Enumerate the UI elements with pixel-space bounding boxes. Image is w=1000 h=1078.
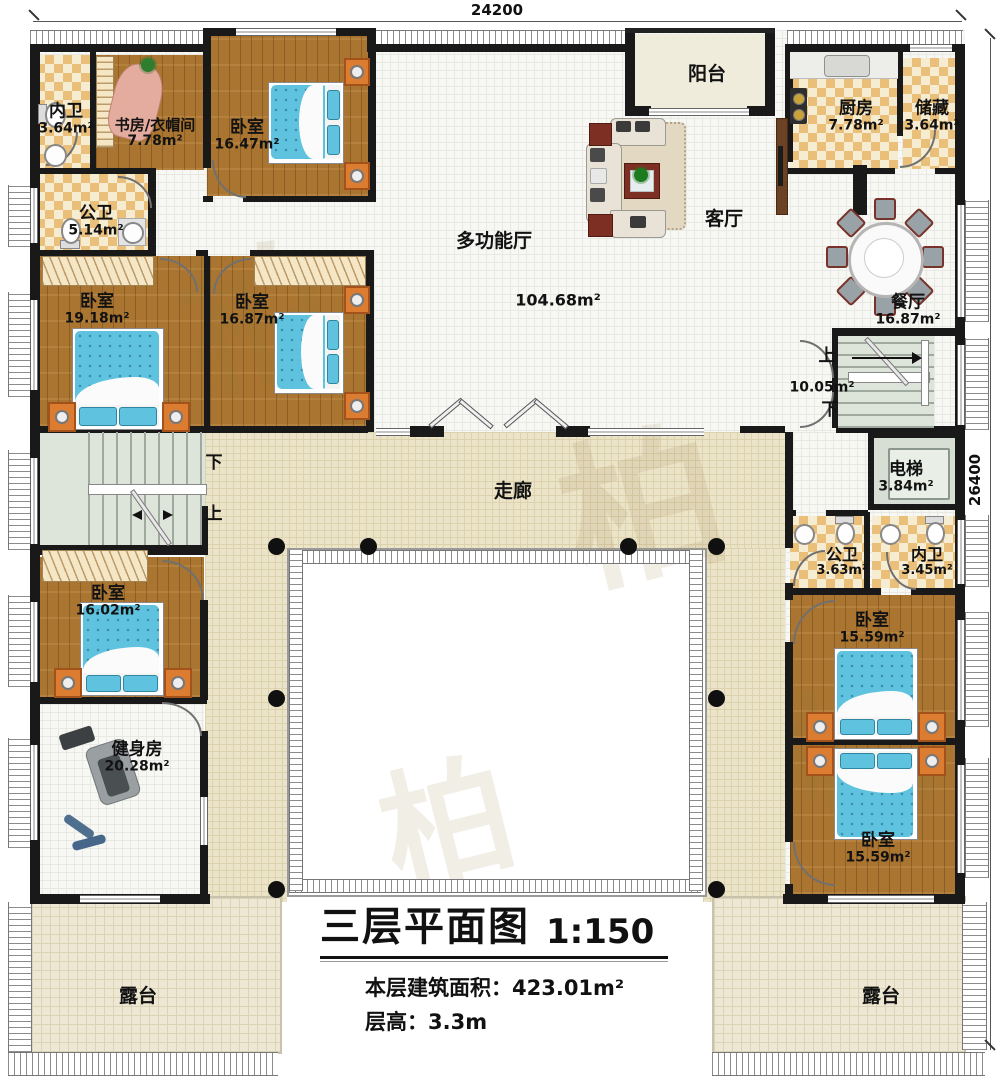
- wall: [785, 588, 881, 595]
- sofa-cushion: [616, 121, 631, 132]
- stair-handrail: [921, 340, 929, 406]
- wall: [200, 600, 208, 700]
- room-area: 3.84m²: [878, 480, 933, 495]
- room-area: 3.64m²: [904, 119, 959, 134]
- closet: [254, 256, 366, 286]
- room-name: 走廊: [494, 482, 532, 502]
- pillow: [327, 125, 340, 155]
- wall: [148, 168, 156, 256]
- column-dot: [708, 690, 725, 707]
- nightstand: [344, 162, 370, 190]
- stove-burner: [793, 93, 805, 105]
- window: [30, 458, 38, 544]
- courtyard-parapet: [289, 879, 701, 893]
- wall: [243, 196, 376, 202]
- floor-corridor-right: [703, 548, 785, 902]
- stairs-right-up-label: 上: [819, 348, 836, 366]
- room-name: 公卫: [68, 206, 123, 224]
- nightstand: [344, 392, 370, 420]
- wall: [204, 426, 368, 433]
- floor-plan: 柏 柏 柏 柏: [0, 0, 1000, 1078]
- sofa-cushion: [590, 188, 605, 202]
- wall: [203, 36, 211, 168]
- dining-chair: [826, 246, 848, 268]
- terrace-parapet: [8, 902, 32, 1052]
- room-label-bedroom-1647: 卧室 16.47m²: [214, 120, 279, 153]
- nightstand: [344, 286, 370, 314]
- wall: [200, 731, 208, 797]
- window-hatch: [965, 515, 989, 587]
- window-hatch: [8, 738, 32, 848]
- room-name: 卧室: [219, 295, 284, 313]
- window: [957, 345, 965, 425]
- pillow: [327, 320, 339, 350]
- stove-burner: [793, 109, 805, 121]
- dining-table-inner: [864, 238, 904, 278]
- terrace-parapet: [8, 1052, 278, 1076]
- dining-chair: [922, 246, 944, 268]
- balcony-rail: [625, 28, 775, 33]
- scale-label: 1:150: [546, 912, 654, 952]
- column-dot: [268, 690, 285, 707]
- room-name: 卧室: [845, 833, 910, 851]
- dimension-line-top: [33, 21, 962, 22]
- direction-label: 下: [206, 455, 223, 473]
- sofa-cushion: [590, 168, 607, 184]
- dimension-right: 26400: [966, 454, 984, 506]
- room-area: 10.05m²: [789, 381, 854, 396]
- stairs-right-down-label: 下: [822, 402, 839, 420]
- room-name: 厨房: [828, 101, 883, 119]
- room-name: 电梯: [878, 462, 933, 480]
- room-name: 公卫: [816, 547, 867, 564]
- plant: [634, 168, 648, 182]
- room-name: 健身房: [104, 742, 169, 760]
- room-area: 5.14m²: [68, 224, 123, 239]
- room-area: 19.18m²: [64, 312, 129, 327]
- window: [30, 300, 38, 390]
- window: [30, 602, 38, 682]
- room-label-gym: 健身房 20.28m²: [104, 742, 169, 775]
- direction-label: 上: [819, 348, 836, 366]
- window: [957, 520, 965, 584]
- stairs-left-down-label: 下: [206, 455, 223, 473]
- column-dot: [708, 881, 725, 898]
- room-name: 卧室: [839, 613, 904, 631]
- nightstand: [806, 712, 834, 742]
- sink: [44, 144, 67, 167]
- wall: [790, 510, 796, 516]
- window: [957, 765, 965, 873]
- room-name: 书房/衣帽间: [115, 118, 195, 134]
- sofa-cushion: [630, 216, 646, 228]
- stair-handrail: [848, 372, 930, 383]
- room-name: 储藏: [904, 101, 959, 119]
- closet: [42, 550, 148, 582]
- stair-arrow-line: [852, 357, 914, 359]
- stair-arrow: [163, 510, 173, 520]
- window-hatch: [965, 758, 989, 878]
- window: [828, 895, 934, 903]
- title-underline-thin: [320, 961, 668, 962]
- wall: [200, 845, 208, 900]
- room-name: 阳台: [688, 65, 726, 85]
- nightstand: [918, 712, 946, 742]
- bed: [834, 748, 918, 840]
- courtyard-parapet: [289, 550, 303, 891]
- wall: [36, 168, 154, 174]
- stair-handrail: [88, 484, 207, 495]
- title-underline: [320, 956, 668, 959]
- room-label-gongwei-363: 公卫 3.63m²: [816, 547, 867, 577]
- room-label-bedroom-1918: 卧室 19.18m²: [64, 294, 129, 327]
- room-name: 内卫: [901, 547, 952, 564]
- room-label-balcony: 阳台: [688, 65, 726, 85]
- window: [957, 205, 965, 317]
- tv: [778, 146, 783, 186]
- sink: [794, 524, 815, 545]
- window: [588, 428, 704, 436]
- window: [30, 188, 38, 243]
- closet: [42, 256, 154, 286]
- wall: [740, 426, 785, 433]
- wall: [765, 28, 775, 116]
- bed: [72, 328, 164, 430]
- nightstand: [54, 668, 82, 698]
- toilet: [926, 522, 945, 545]
- wall: [747, 106, 775, 116]
- window-hatch: [8, 595, 32, 687]
- room-area: 20.28m²: [104, 760, 169, 775]
- side-table: [589, 123, 612, 146]
- room-label-terrace-right: 露台: [862, 987, 900, 1007]
- room-area: 3.63m²: [816, 564, 867, 578]
- stair-arrow: [912, 352, 922, 364]
- room-label-terrace-left: 露台: [119, 987, 157, 1007]
- nightstand: [164, 668, 192, 698]
- floor-height-line: 层高：3.3m: [365, 1006, 487, 1036]
- pillow: [327, 90, 340, 120]
- dimension-tick: [955, 9, 966, 20]
- dining-chair: [874, 198, 896, 220]
- wall: [627, 106, 651, 116]
- pillow: [119, 407, 157, 426]
- dimension-tick: [28, 9, 39, 20]
- pillow: [123, 675, 158, 692]
- room-label-neiwei-top: 内卫 3.64m²: [38, 104, 93, 137]
- window: [957, 620, 965, 720]
- room-name: 客厅: [705, 210, 743, 230]
- wall: [371, 44, 629, 52]
- title-row: 三层平面图 1:150: [320, 898, 680, 952]
- direction-label: 下: [822, 402, 839, 420]
- floor-height-label: 层高：: [365, 1010, 428, 1034]
- room-area: 16.87m²: [219, 313, 284, 328]
- room-label-bedroom-1602: 卧室 16.02m²: [75, 586, 140, 619]
- sink: [880, 524, 901, 545]
- floor-terrace-left: [30, 896, 282, 1054]
- sink: [122, 222, 144, 244]
- room-area: 15.59m²: [839, 631, 904, 646]
- room-label-kitchen: 厨房 7.78m²: [828, 101, 883, 134]
- toilet: [836, 522, 855, 545]
- room-name: 露台: [862, 987, 900, 1007]
- floor-corridor-left: [205, 548, 287, 902]
- nightstand: [806, 746, 834, 776]
- window-hatch: [8, 185, 32, 247]
- window-hatch: [965, 612, 989, 727]
- column-dot: [268, 538, 285, 555]
- window: [910, 44, 952, 52]
- nightstand: [48, 402, 76, 432]
- wall: [935, 168, 962, 174]
- wall: [204, 256, 210, 426]
- room-area: 7.78m²: [115, 134, 195, 149]
- room-area-hall: 104.68m²: [515, 293, 600, 310]
- stairs-right-area: 10.05m²: [789, 381, 854, 396]
- floor-terrace-right: [712, 896, 966, 1054]
- courtyard-parapet: [289, 550, 701, 564]
- room-label-bedroom-1559-upper: 卧室 15.59m²: [839, 613, 904, 646]
- pillow: [877, 719, 912, 735]
- wall: [203, 196, 213, 202]
- sofa-cushion: [635, 121, 650, 132]
- window: [80, 895, 160, 903]
- room-area: 15.59m²: [845, 851, 910, 866]
- side-table: [588, 214, 613, 237]
- nightstand: [344, 58, 370, 86]
- room-label-corridor: 走廊: [494, 482, 532, 502]
- window-hatch: [8, 292, 32, 397]
- column-dot: [708, 538, 725, 555]
- wall: [30, 697, 207, 704]
- terrace-parapet: [962, 902, 987, 1050]
- pillow: [877, 753, 912, 769]
- wall: [556, 426, 590, 437]
- wall: [868, 504, 962, 510]
- room-label-dining: 餐厅 16.87m²: [875, 295, 940, 328]
- wall: [911, 588, 962, 595]
- column-dot: [620, 538, 637, 555]
- room-label-study: 书房/衣帽间 7.78m²: [115, 118, 195, 148]
- wall: [625, 28, 635, 116]
- room-area: 7.78m²: [828, 119, 883, 134]
- wall: [410, 426, 444, 437]
- direction-label: 上: [206, 506, 223, 524]
- pillow: [327, 354, 339, 384]
- window: [200, 797, 208, 845]
- room-label-living: 客厅: [705, 210, 743, 230]
- room-name: 餐厅: [875, 295, 940, 313]
- pillow: [840, 753, 875, 769]
- window-hatch: [965, 338, 989, 430]
- stairs-left-up-label: 上: [206, 506, 223, 524]
- sofa-cushion: [590, 148, 605, 162]
- wall: [868, 432, 874, 508]
- wall: [853, 165, 867, 215]
- room-name: 卧室: [75, 586, 140, 604]
- wall: [868, 432, 962, 438]
- room-label-bedroom-1559-lower: 卧室 15.59m²: [845, 833, 910, 866]
- room-label-elevator: 电梯 3.84m²: [878, 462, 933, 495]
- wall: [30, 44, 205, 52]
- room-label-gongwei-514: 公卫 5.14m²: [68, 206, 123, 239]
- room-label-hall: 多功能厅: [456, 232, 532, 252]
- dimension-line-right: [990, 38, 991, 1050]
- room-name: 多功能厅: [456, 232, 532, 252]
- floor-height-value: 3.3m: [428, 1010, 487, 1034]
- courtyard-parapet: [689, 550, 703, 891]
- room-area: 16.02m²: [75, 604, 140, 619]
- kitchen-sink: [824, 55, 870, 77]
- room-name: 卧室: [214, 120, 279, 138]
- window: [236, 28, 336, 36]
- plant: [141, 58, 155, 72]
- room-area: 3.64m²: [38, 122, 93, 137]
- pillow: [840, 719, 875, 735]
- column-dot: [360, 538, 377, 555]
- stair-arrow: [132, 510, 142, 520]
- window: [376, 428, 412, 436]
- window-hatch: [965, 200, 989, 322]
- pillow: [86, 675, 121, 692]
- room-area: 16.47m²: [214, 138, 279, 153]
- bed-sheet: [301, 315, 323, 389]
- room-label-storage: 储藏 3.64m²: [904, 101, 959, 134]
- nightstand: [918, 746, 946, 776]
- wall: [785, 432, 793, 548]
- room-area: 104.68m²: [515, 293, 600, 310]
- pillow: [79, 407, 117, 426]
- window: [30, 745, 38, 840]
- dimension-top: 24200: [471, 1, 523, 19]
- nightstand: [162, 402, 190, 432]
- bed-sheet: [299, 85, 323, 159]
- courtyard: [287, 548, 707, 897]
- floor-area-value: 423.01m²: [512, 976, 624, 1000]
- room-label-neiwei-345: 内卫 3.45m²: [901, 547, 952, 577]
- wall: [785, 168, 895, 174]
- room-area: 16.87m²: [875, 313, 940, 328]
- room-label-bedroom-1687-left: 卧室 16.87m²: [219, 295, 284, 328]
- floor-area-label: 本层建筑面积：: [365, 976, 512, 1000]
- page-title: 三层平面图: [320, 894, 530, 952]
- bed: [834, 648, 918, 740]
- room-name: 露台: [119, 987, 157, 1007]
- floor-area-line: 本层建筑面积：423.01m²: [365, 972, 624, 1002]
- balcony-sliding-door: [649, 108, 749, 116]
- window-hatch: [8, 450, 32, 550]
- wall: [785, 884, 793, 896]
- room-name: 内卫: [38, 104, 93, 122]
- terrace-parapet: [712, 1052, 985, 1076]
- room-area: 3.45m²: [901, 564, 952, 578]
- column-dot: [268, 881, 285, 898]
- room-name: 卧室: [64, 294, 129, 312]
